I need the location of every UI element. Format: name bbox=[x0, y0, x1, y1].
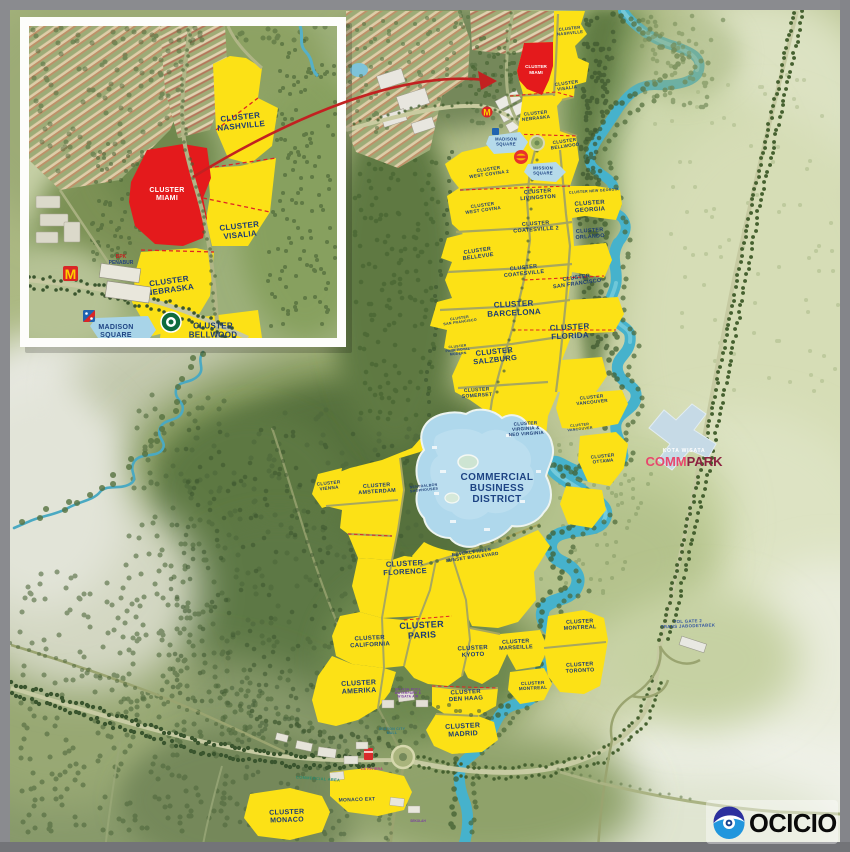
svg-text:COMMPARK: COMMPARK bbox=[645, 454, 723, 469]
svg-text:MIAMI: MIAMI bbox=[529, 70, 543, 75]
svg-text:KYOTO: KYOTO bbox=[462, 652, 485, 659]
svg-text:CLUSTER: CLUSTER bbox=[525, 64, 547, 69]
svg-text:MALL: MALL bbox=[387, 731, 398, 735]
svg-text:M: M bbox=[65, 266, 77, 282]
svg-text:SQUARE: SQUARE bbox=[496, 141, 516, 146]
svg-text:SQUARE: SQUARE bbox=[100, 332, 132, 339]
svg-text:MONACO: MONACO bbox=[270, 816, 304, 824]
svg-text:BUSINESS: BUSINESS bbox=[470, 483, 524, 494]
svg-text:COMMERCIAL: COMMERCIAL bbox=[461, 472, 534, 483]
svg-text:SEKOLAH: SEKOLAH bbox=[410, 819, 426, 823]
svg-text:WISATA AIR: WISATA AIR bbox=[397, 695, 419, 699]
svg-text:SQUARE: SQUARE bbox=[533, 170, 553, 175]
svg-text:PARIS: PARIS bbox=[408, 629, 437, 640]
svg-text:MIAMI: MIAMI bbox=[156, 195, 178, 202]
svg-text:CLUSTER: CLUSTER bbox=[193, 322, 233, 331]
svg-text:CLUSTER: CLUSTER bbox=[149, 187, 184, 194]
svg-text:LA RIVIERA: LA RIVIERA bbox=[361, 767, 383, 771]
svg-text:DISTRICT: DISTRICT bbox=[472, 494, 521, 505]
svg-text:OCICIO: OCICIO bbox=[749, 810, 837, 838]
svg-text:MADISON: MADISON bbox=[98, 324, 133, 331]
svg-text:M: M bbox=[483, 108, 491, 118]
